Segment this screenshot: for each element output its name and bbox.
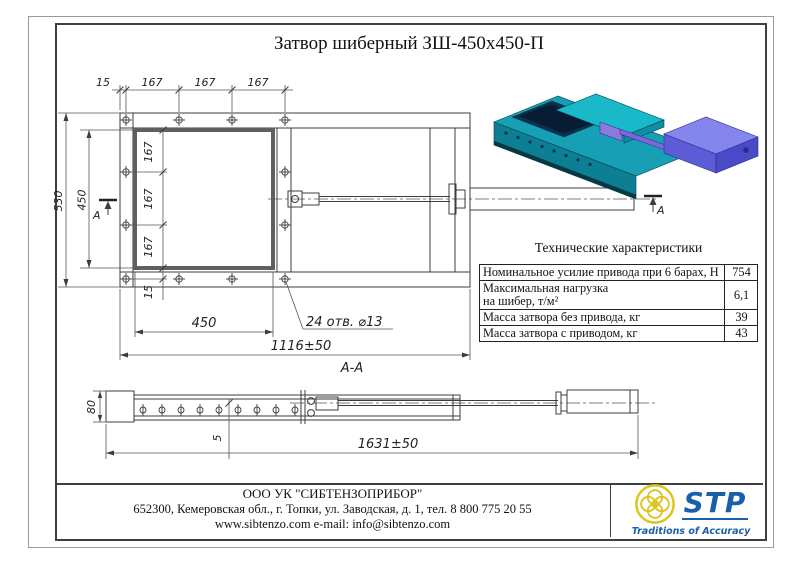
dim-width-450: 450 xyxy=(135,272,273,337)
dim-side-chain: 167 167 167 15 xyxy=(132,127,167,301)
svg-text:5: 5 xyxy=(211,435,224,442)
stp-logo-tagline: Traditions of Accuracy xyxy=(632,526,751,537)
svg-text:15: 15 xyxy=(96,76,110,89)
stp-emblem-icon xyxy=(634,483,676,525)
section-bolt-row xyxy=(140,404,298,416)
dim-length-1631: 1631±50 xyxy=(106,415,638,459)
svg-text:15: 15 xyxy=(142,285,155,299)
svg-text:530: 530 xyxy=(52,191,65,212)
table-row: Масса затвора без привода, кг 39 xyxy=(480,310,758,326)
spec-label: Номинальное усилие привода при 6 барах, … xyxy=(480,265,725,281)
section-view-label: А-А xyxy=(340,361,363,376)
dim-length-1116: 1116±50 xyxy=(120,289,470,360)
table-row: Масса затвора с приводом, кг 43 xyxy=(480,326,758,342)
footer-text: ООО УК "СИБТЕНЗОПРИБОР" 652300, Кемеровс… xyxy=(60,486,605,532)
svg-text:80: 80 xyxy=(85,400,98,414)
svg-text:А: А xyxy=(92,209,101,222)
spec-table: Технические характеристики Номинальное у… xyxy=(479,240,758,342)
svg-text:167: 167 xyxy=(142,189,155,210)
company-name: ООО УК "СИБТЕНЗОПРИБОР" xyxy=(60,486,605,502)
dim-height-80: 80 xyxy=(85,391,108,422)
svg-text:А: А xyxy=(656,204,665,217)
svg-text:167: 167 xyxy=(248,76,269,89)
spec-table-title: Технические характеристики xyxy=(479,240,758,256)
spec-value: 6,1 xyxy=(725,281,758,310)
spec-value: 754 xyxy=(725,265,758,281)
footer-divider xyxy=(610,483,611,537)
spec-label: Максимальная нагрузка на шибер, т/м² xyxy=(480,281,725,310)
stp-logo-text: STP xyxy=(682,488,749,520)
svg-text:167: 167 xyxy=(195,76,216,89)
table-row: Максимальная нагрузка на шибер, т/м² 6,1 xyxy=(480,281,758,310)
company-address: 652300, Кемеровская обл., г. Топки, ул. … xyxy=(60,502,605,517)
svg-text:450: 450 xyxy=(76,190,89,211)
company-web: www.sibtenzo.com e-mail: info@sibtenzo.c… xyxy=(60,517,605,532)
svg-text:450: 450 xyxy=(192,316,217,331)
spec-value: 43 xyxy=(725,326,758,342)
holes-callout: 24 отв. ⌀13 xyxy=(286,282,393,330)
table-row: Номинальное усилие привода при 6 барах, … xyxy=(480,265,758,281)
iso-3d-view xyxy=(494,94,758,199)
section-cylinder xyxy=(567,390,638,413)
spec-value: 39 xyxy=(725,310,758,326)
svg-text:1631±50: 1631±50 xyxy=(358,437,419,452)
svg-text:167: 167 xyxy=(142,76,163,89)
spec-label: Масса затвора с приводом, кг xyxy=(480,326,725,342)
svg-text:167: 167 xyxy=(142,142,155,163)
stp-logo: STP Traditions of Accuracy xyxy=(625,485,757,535)
spec-label: Масса затвора без привода, кг xyxy=(480,310,725,326)
svg-text:24 отв. ⌀13: 24 отв. ⌀13 xyxy=(306,315,383,330)
section-marker-left: А xyxy=(92,200,117,222)
svg-text:167: 167 xyxy=(142,237,155,258)
section-view-aa: А-А xyxy=(85,361,655,459)
gate-opening-seat xyxy=(135,130,273,268)
dim-top-chain: 15 167 167 167 xyxy=(96,76,293,112)
svg-text:1116±50: 1116±50 xyxy=(271,339,332,354)
iso-actuator xyxy=(664,117,758,173)
